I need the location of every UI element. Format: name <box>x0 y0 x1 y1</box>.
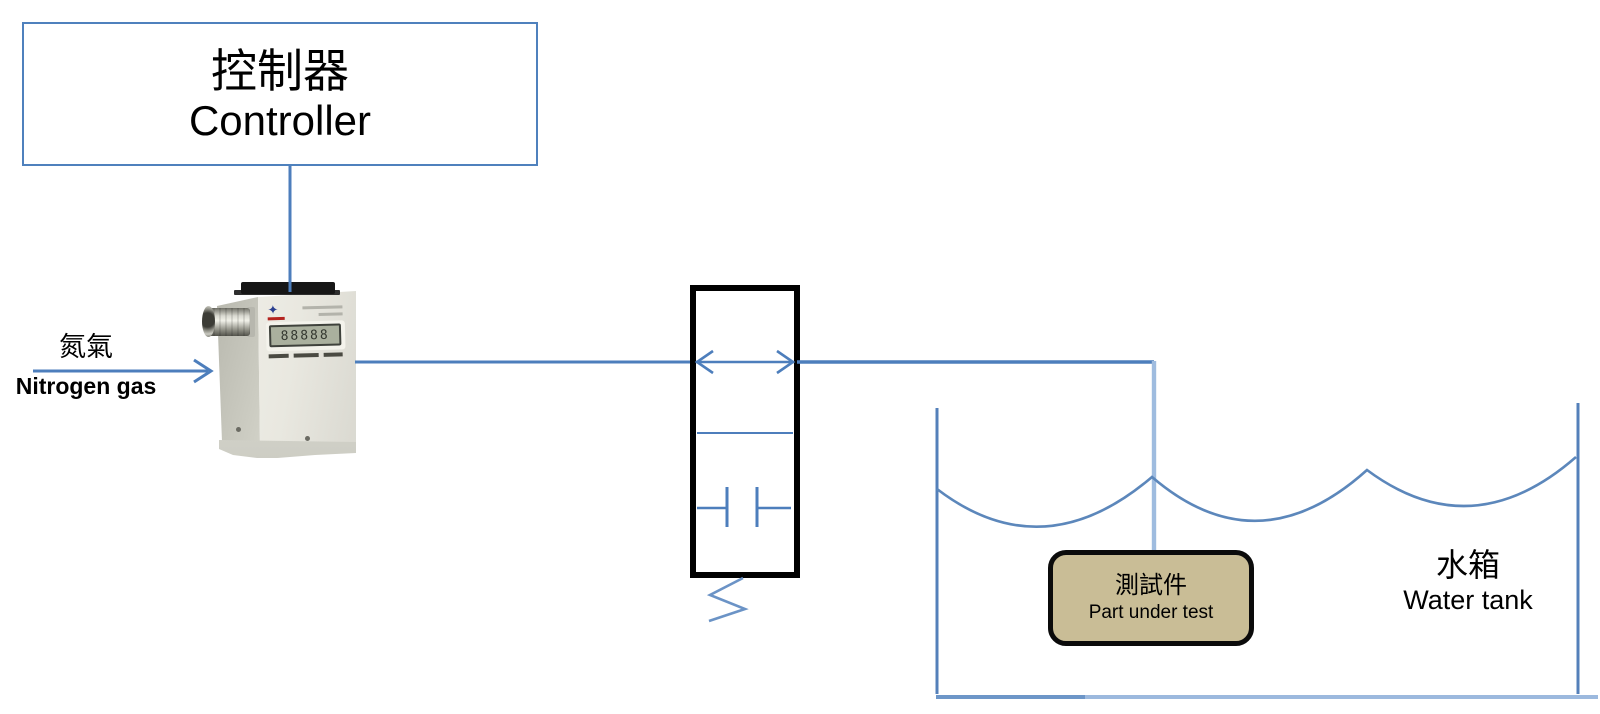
device-caption-text3 <box>324 352 343 356</box>
device-caption-text2 <box>294 353 319 358</box>
device-caption-text1 <box>269 354 289 359</box>
device-lcd-display: 88888 <box>269 323 342 347</box>
device-base-screw1 <box>236 427 241 432</box>
controller-label-zh: 控制器 <box>211 44 349 98</box>
device-logo-icon: ✦ <box>267 303 278 316</box>
valve-flow-arrow <box>696 351 794 373</box>
device-model-text-line <box>302 305 342 309</box>
part-label-zh: 測試件 <box>1115 571 1187 601</box>
device-front-panel: ✦ 88888 <box>201 276 362 460</box>
water-tank-label-en: Water tank <box>1368 584 1568 616</box>
part-label-en: Part under test <box>1089 601 1214 625</box>
part-under-test-box: 測試件 Part under test <box>1048 550 1254 646</box>
device-model-text-line2 <box>319 312 343 316</box>
device-logo-red-text <box>268 317 285 320</box>
mass-flow-controller-device: ✦ 88888 <box>203 278 359 458</box>
water-tank-label-zh: 水箱 <box>1368 546 1568 584</box>
nitrogen-gas-label: 氮氣 Nitrogen gas <box>0 332 172 401</box>
device-base-screw2 <box>305 436 310 441</box>
device-lcd-digits: 88888 <box>280 327 330 343</box>
nitrogen-label-en: Nitrogen gas <box>0 371 172 401</box>
controller-label-en: Controller <box>189 98 371 144</box>
controller-box: 控制器 Controller <box>22 22 538 166</box>
water-surface-wave <box>937 457 1576 527</box>
valve-solenoid-symbol <box>697 487 791 527</box>
nitrogen-label-zh: 氮氣 <box>0 332 172 362</box>
solenoid-valve-symbol <box>693 288 797 621</box>
water-tank-label: 水箱 Water tank <box>1368 546 1568 616</box>
valve-spring-icon <box>709 578 745 621</box>
leak-test-diagram: 控制器 Controller 氮氣 Nitrogen gas ✦ 88888 <box>0 0 1600 714</box>
valve-body-rect <box>693 288 797 575</box>
